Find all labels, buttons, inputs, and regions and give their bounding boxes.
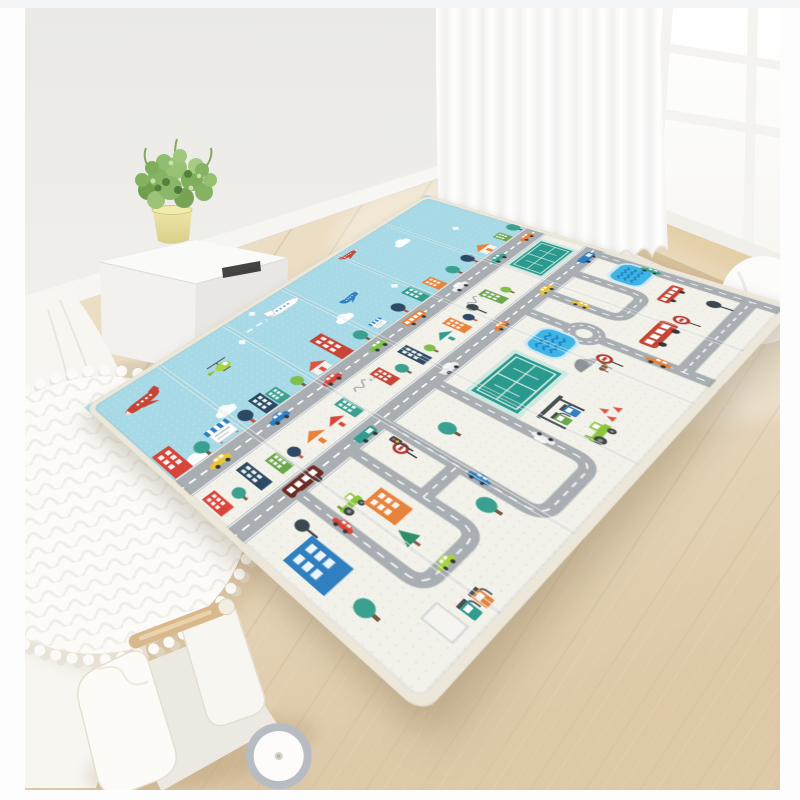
photo-frame bbox=[25, 8, 780, 790]
page-top-margin bbox=[0, 0, 800, 8]
page bbox=[0, 0, 800, 800]
